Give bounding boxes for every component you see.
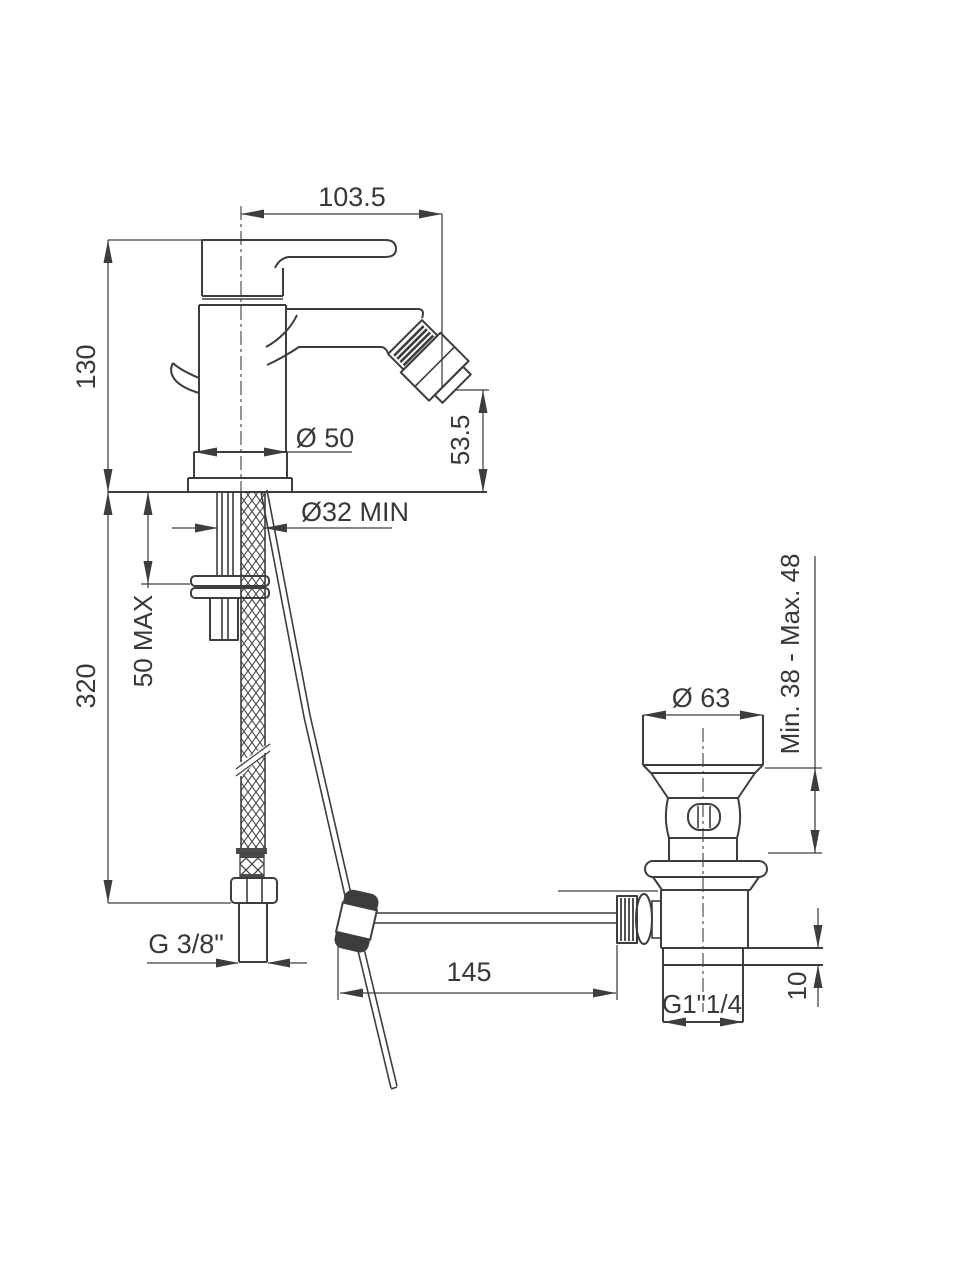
dim-waste-flange-diameter: Ø 63: [672, 683, 731, 713]
bidet-mixer-dimension-drawing: 103.5 130 Ø 50 53.5 Ø32 MIN 50 MAX 320 Ø…: [0, 0, 970, 1269]
dim-base-diameter: Ø 50: [296, 423, 355, 453]
dim-mounting-hole: Ø32 MIN: [301, 497, 409, 527]
dim-supply-length: 320: [71, 663, 101, 708]
dim-rod-reach: 145: [446, 957, 491, 987]
dim-flange-thickness: 10: [782, 972, 812, 1001]
technical-drawing-page: 103.5 130 Ø 50 53.5 Ø32 MIN 50 MAX 320 Ø…: [0, 0, 970, 1269]
dim-waste-thread: G1"1/4: [662, 989, 742, 1019]
pop-up-rod: [261, 490, 658, 1089]
dimension-lines: [104, 210, 823, 1027]
dim-supply-thread: G 3/8": [148, 929, 224, 959]
rod-linkage-joint: [333, 888, 381, 954]
dim-waste-height-range: Min. 38 - Max. 48: [775, 554, 805, 755]
aerator-outline: [385, 317, 476, 408]
dim-max-deck-thickness: 50 MAX: [128, 595, 158, 688]
flex-hose: [231, 492, 277, 962]
dim-total-height: 130: [71, 344, 101, 389]
dim-outlet-height: 53.5: [445, 415, 475, 466]
dim-spout-reach: 103.5: [318, 182, 386, 212]
